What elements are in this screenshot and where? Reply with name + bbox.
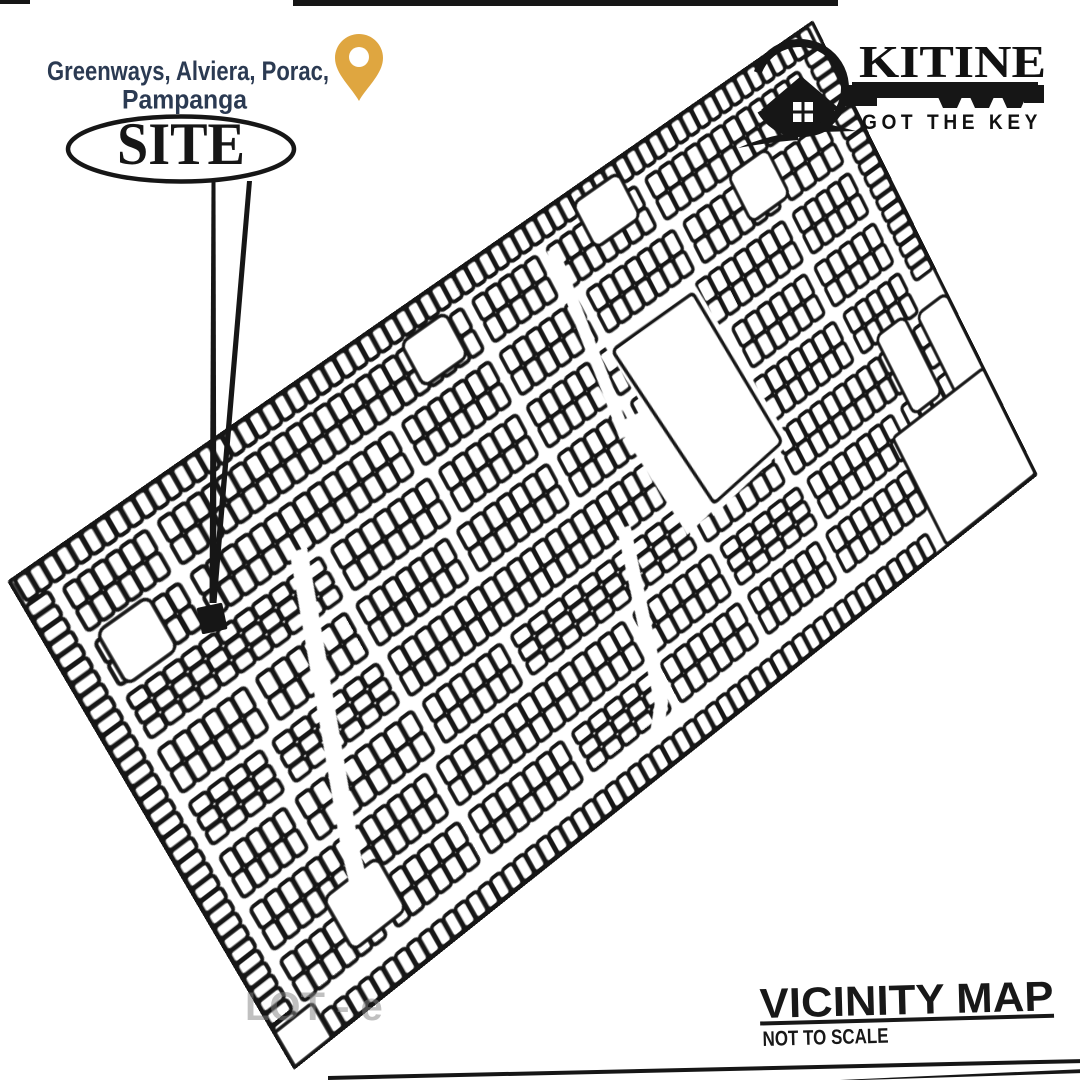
svg-text:LOT - e: LOT - e [245, 985, 383, 1029]
svg-text:GOT THE KEY: GOT THE KEY [862, 111, 1042, 134]
svg-text:NOT TO SCALE: NOT TO SCALE [762, 1025, 889, 1051]
svg-text:Greenways, Alviera, Porac,: Greenways, Alviera, Porac, [47, 56, 329, 86]
svg-text:Pampanga: Pampanga [122, 85, 248, 115]
svg-text:KITINE: KITINE [859, 36, 1046, 87]
svg-text:SITE: SITE [117, 111, 245, 177]
